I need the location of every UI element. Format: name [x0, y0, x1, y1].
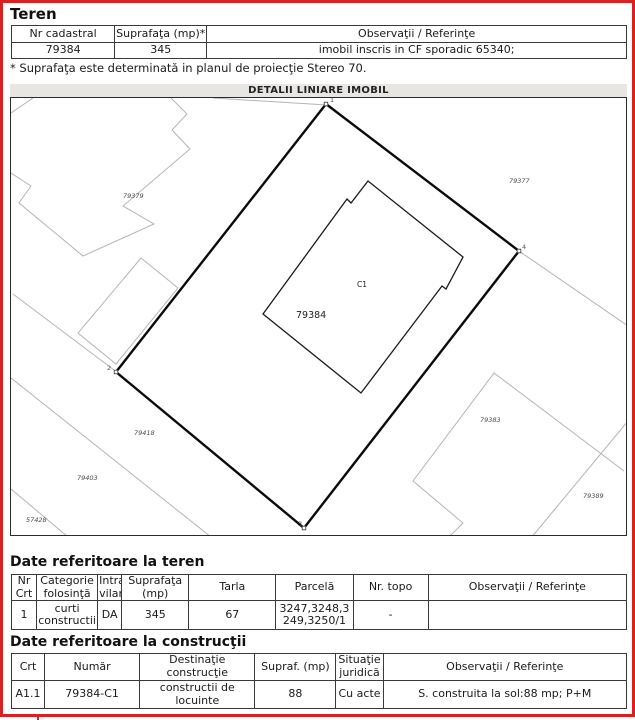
teren-detail-table: Nr Crt Categorie folosinţă Intra vilan S…	[11, 574, 627, 630]
section-title-date-constructii: Date referitoare la construcţii	[10, 634, 246, 650]
col-suprafata: Suprafaţa (mp)*	[115, 26, 207, 43]
col-intravilan-line1: Intra	[99, 575, 120, 588]
parcel-label-79389: 79389	[583, 492, 604, 500]
col-suprafata-line1: Suprafaţa	[123, 575, 187, 588]
cell-nr-crt: 1	[12, 601, 37, 630]
vertex-label-3: 3	[298, 520, 302, 528]
col-destinatie-line2: construcţie	[141, 667, 253, 680]
constructii-table: Crt Număr Destinaţie construcţie Supraf.…	[11, 653, 627, 709]
cell-tarla: 67	[189, 601, 276, 630]
parcel-label-79418: 79418	[134, 429, 155, 437]
cell-nr-cadastral: 79384	[12, 43, 115, 59]
col-categorie-line2: folosinţă	[38, 588, 96, 601]
teren-detail-header-row: Nr Crt Categorie folosinţă Intra vilan S…	[12, 575, 627, 601]
col-categorie: Categorie folosinţă	[37, 575, 98, 601]
parcel-label-79383: 79383	[480, 416, 501, 424]
teren-summary-header-row: Nr cadastral Suprafaţa (mp)* Observaţii …	[12, 26, 627, 43]
cell-suprafata-mp: 345	[122, 601, 189, 630]
vertex-label-1: 1	[330, 98, 334, 104]
col-nr-crt: Nr Crt	[12, 575, 37, 601]
vertex-label-2: 2	[107, 364, 111, 372]
col-nr-crt-line1: Nr	[13, 575, 35, 588]
cell-observatii-constructii: S. construita la sol:88 mp; P+M	[383, 681, 626, 709]
building-label-c1: C1	[357, 280, 367, 289]
col-categorie-line1: Categorie	[38, 575, 96, 588]
cell-crt: A1.1	[12, 681, 45, 709]
col-tarla: Tarla	[189, 575, 276, 601]
constructii-header-row: Crt Număr Destinaţie construcţie Supraf.…	[12, 654, 627, 681]
col-observatii-teren: Observaţii / Referinţe	[428, 575, 626, 601]
col-intravilan: Intra vilan	[98, 575, 122, 601]
parcel-label-79403: 79403	[77, 474, 98, 482]
stereo70-footnote: * Suprafaţa este determinată in planul d…	[10, 61, 367, 75]
col-situatie-line2: juridică	[337, 667, 381, 680]
parcel-label-79384: 79384	[296, 310, 326, 321]
col-nr-topo: Nr. topo	[353, 575, 428, 601]
col-observatii-constructii: Observaţii / Referinţe	[383, 654, 626, 681]
cell-situatie: Cu acte	[336, 681, 383, 709]
cell-categorie: curti constructii	[37, 601, 98, 630]
col-nr-crt-line2: Crt	[13, 588, 35, 601]
cadastral-map: 1 2 3 4 79379 79377 79418 79403 57428 79…	[10, 97, 627, 536]
teren-summary-data-row: 79384 345 imobil inscris in CF sporadic …	[12, 43, 627, 59]
section-title-teren: Teren	[10, 5, 57, 23]
col-situatie: Situaţie juridică	[336, 654, 383, 681]
section-title-date-teren: Date referitoare la teren	[10, 554, 205, 570]
cadastral-document-page: { "colors": { "page_border": "#d92121", …	[0, 0, 635, 720]
teren-summary-table: Nr cadastral Suprafaţa (mp)* Observaţii …	[11, 25, 627, 59]
teren-detail-data-row: 1 curti constructii DA 345 67 3247,3248,…	[12, 601, 627, 630]
cell-intravilan: DA	[98, 601, 122, 630]
col-suprafata-line2: (mp)	[123, 588, 187, 601]
red-border-artifact	[37, 714, 39, 720]
col-suprafata-mp: Suprafaţa (mp)	[122, 575, 189, 601]
cadastral-map-svg: 1 2 3 4 79379 79377 79418 79403 57428 79…	[11, 98, 626, 535]
map-title-bar: DETALII LINIARE IMOBIL	[10, 84, 627, 97]
cell-suprafata: 345	[115, 43, 207, 59]
cell-parcela: 3247,3248,3249,3250/1	[276, 601, 353, 630]
col-supraf-mp: Supraf. (mp)	[255, 654, 336, 681]
parcel-label-79379: 79379	[123, 192, 144, 200]
parcel-label-57428: 57428	[26, 516, 47, 524]
cell-numar: 79384-C1	[45, 681, 140, 709]
col-nr-cadastral: Nr cadastral	[12, 26, 115, 43]
col-parcela: Parcelă	[276, 575, 353, 601]
col-observatii: Observaţii / Referinţe	[207, 26, 627, 43]
col-crt: Crt	[12, 654, 45, 681]
cell-supraf-mp: 88	[255, 681, 336, 709]
cell-observatii: imobil inscris in CF sporadic 65340;	[207, 43, 627, 59]
col-numar: Număr	[45, 654, 140, 681]
parcel-label-79377: 79377	[509, 177, 531, 185]
constructii-data-row: A1.1 79384-C1 constructii de locuinte 88…	[12, 681, 627, 709]
cell-nr-topo: -	[353, 601, 428, 630]
col-destinatie: Destinaţie construcţie	[140, 654, 255, 681]
vertex-label-4: 4	[522, 243, 526, 251]
cell-destinatie: constructii de locuinte	[140, 681, 255, 709]
col-intravilan-line2: vilan	[99, 588, 120, 601]
cell-observatii-teren	[428, 601, 626, 630]
